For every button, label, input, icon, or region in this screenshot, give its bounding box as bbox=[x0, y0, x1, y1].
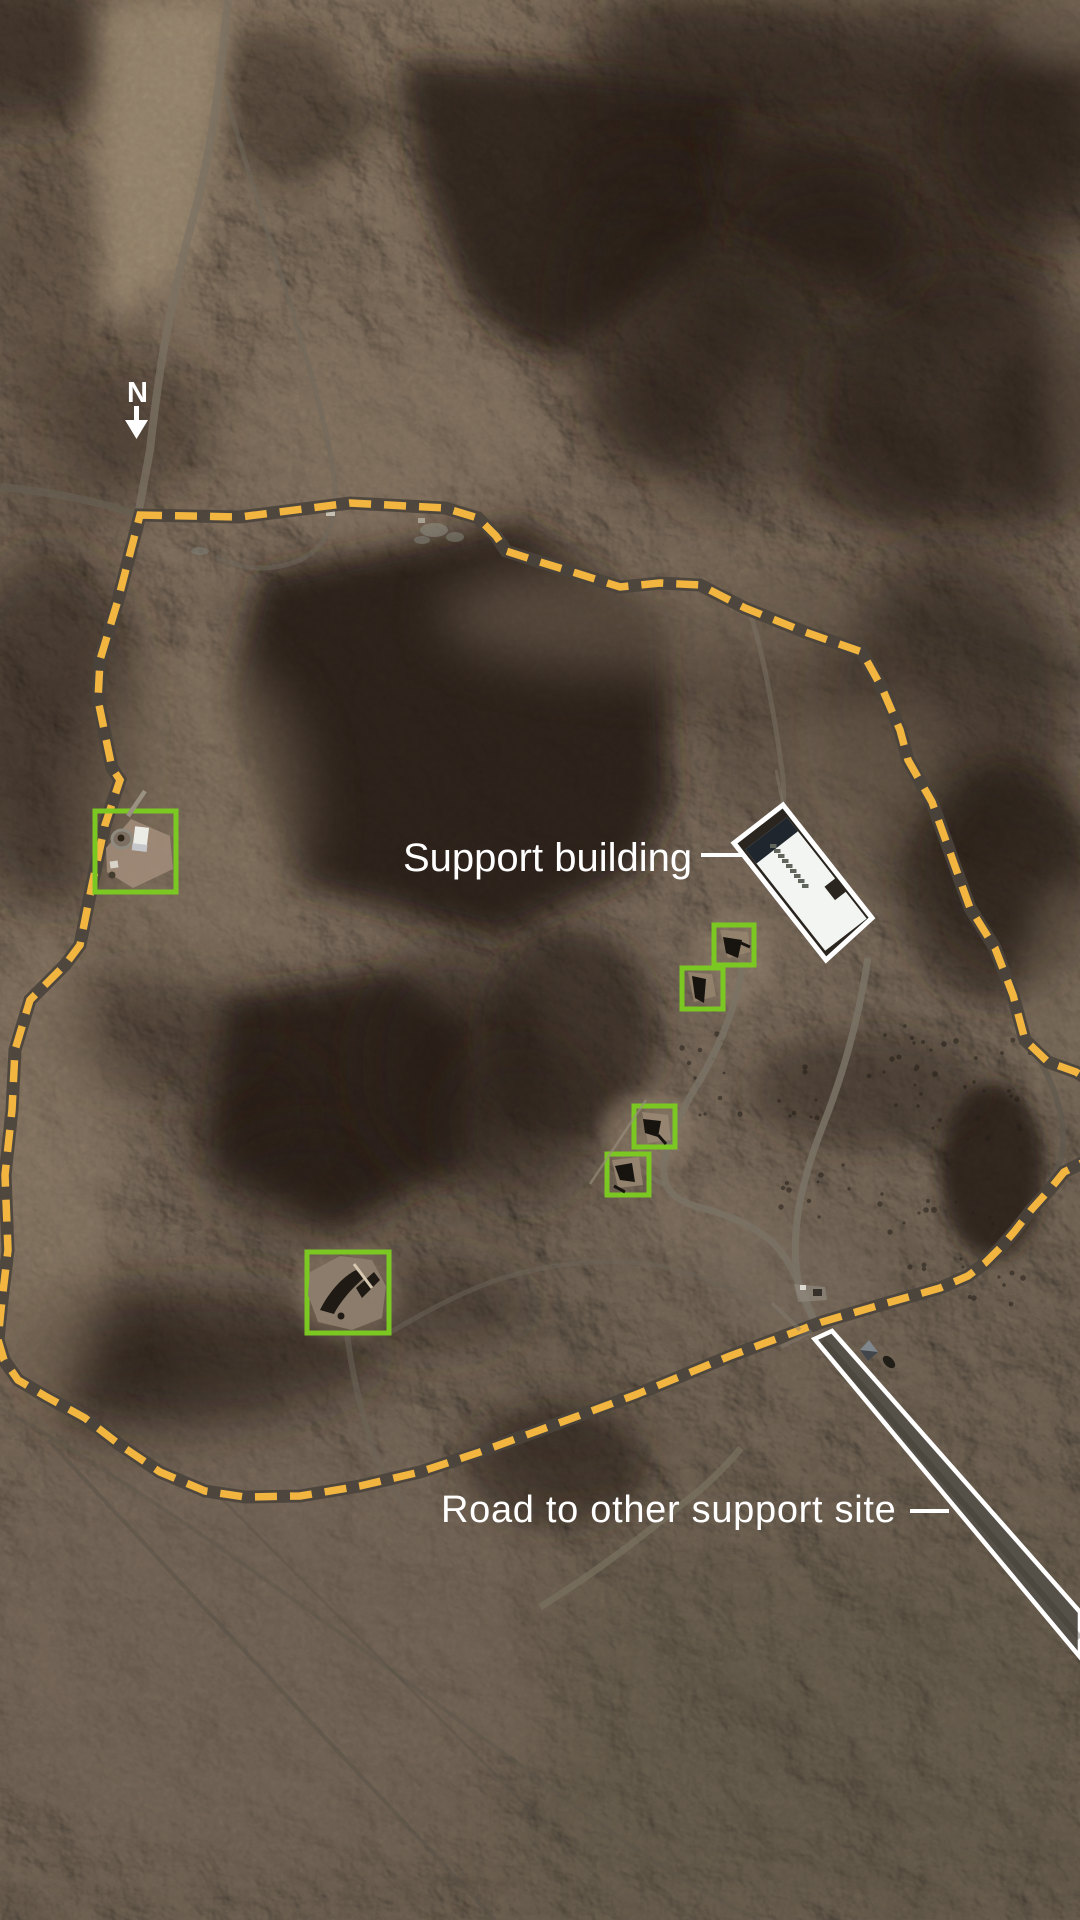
svg-text:N: N bbox=[127, 377, 148, 409]
svg-text:Road to other support site: Road to other support site bbox=[441, 1489, 896, 1531]
svg-text:Support building: Support building bbox=[403, 836, 692, 880]
